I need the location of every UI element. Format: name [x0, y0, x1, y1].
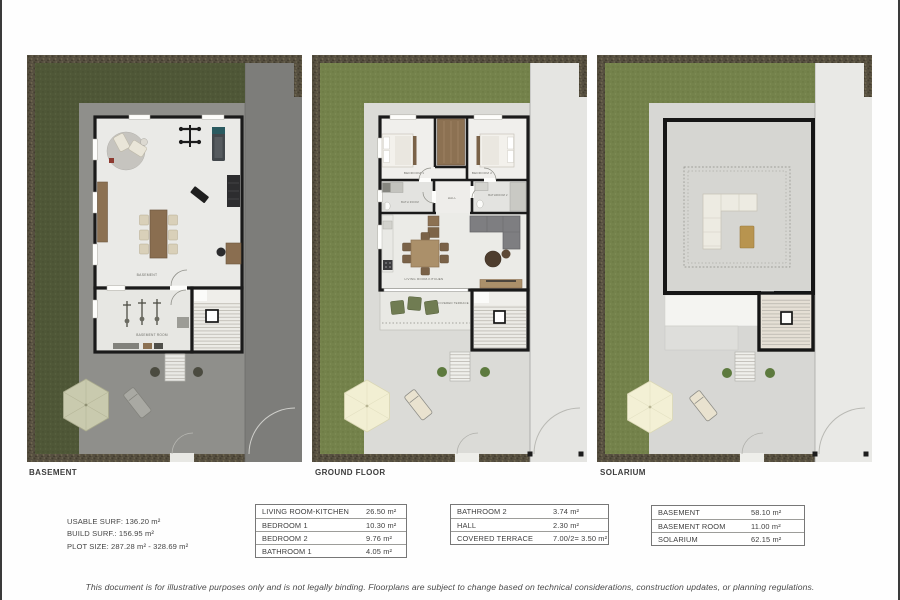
basement-site-plan: BASEMENT BASEMENT ROOM	[27, 55, 302, 462]
wardrobe	[438, 119, 465, 165]
room-label-bedroom1: BEDROOM 1	[404, 171, 424, 175]
exterior-stairs	[450, 352, 470, 381]
table-row: BATHROOM 1 4.05 m²	[256, 544, 406, 557]
room-label-basement-room: BASEMENT ROOM	[136, 333, 168, 337]
ground-floor-floorplan: BEDROOM 1 BEDROOM 2 BATH ROOM HALL BATHR…	[312, 55, 587, 462]
bed-2	[477, 134, 515, 167]
grass-strip-top	[605, 63, 815, 103]
interior-stairs	[472, 290, 528, 350]
grass-strip-top	[35, 63, 245, 103]
room-label-bathroom1: BATH ROOM	[401, 200, 419, 204]
table-row: SOLARIUM 62.15 m²	[652, 532, 804, 545]
side-table	[502, 250, 511, 259]
room-label: BEDROOM 2	[262, 534, 366, 543]
bush	[193, 367, 203, 377]
floorplan-sheet: BASEMENT BASEMENT ROOM	[0, 0, 900, 600]
solarium-floorplan	[597, 55, 872, 462]
bush	[150, 367, 160, 377]
area-value: 11.00 m²	[751, 522, 781, 531]
room-label: BASEMENT ROOM	[658, 522, 751, 531]
neighbor-band	[815, 63, 872, 462]
pouf-table	[740, 226, 754, 248]
area-value: 4.05 m²	[366, 547, 392, 556]
room-label: BATHROOM 1	[262, 547, 366, 556]
room-label: SOLARIUM	[658, 535, 751, 544]
table-row: BASEMENT ROOM 11.00 m²	[652, 519, 804, 532]
legal-disclaimer: This document is for illustrative purpos…	[2, 582, 898, 592]
table-row: LIVING ROOM-KITCHEN 26.50 m²	[256, 505, 406, 518]
bed-1	[382, 134, 417, 167]
dining-set	[140, 210, 178, 258]
exterior-stairs	[735, 352, 755, 381]
neighbor-band	[530, 63, 587, 462]
room-label: COVERED TERRACE	[457, 534, 553, 543]
area-value: 9.76 m²	[366, 534, 392, 543]
basement-building: BASEMENT BASEMENT ROOM	[93, 115, 242, 352]
room-label: HALL	[457, 521, 553, 530]
table-row: BASEMENT 58.10 m²	[652, 506, 804, 519]
table-row: HALL 2.30 m²	[451, 518, 608, 531]
ground-floor-building: BEDROOM 1 BEDROOM 2 BATH ROOM HALL BATHR…	[378, 115, 528, 350]
driveway-band	[245, 63, 302, 462]
plan-title-solarium: SOLARIUM	[600, 468, 646, 477]
area-table-ground-rooms: LIVING ROOM-KITCHEN 26.50 m² BEDROOM 1 1…	[255, 504, 407, 558]
area-value: 10.30 m²	[366, 521, 396, 530]
basement-floorplan: BASEMENT BASEMENT ROOM	[27, 55, 302, 462]
area-value: 7.00/2= 3.50 m²	[553, 534, 607, 543]
area-value: 3.74 m²	[553, 507, 579, 516]
bush	[437, 367, 447, 377]
room-label-bedroom2: BEDROOM 2	[472, 171, 492, 175]
exterior-stairs	[165, 352, 185, 381]
coffee-table	[485, 251, 501, 267]
table-row: COVERED TERRACE 7.00/2= 3.50 m²	[451, 531, 608, 544]
covered-terrace	[380, 290, 472, 330]
area-value: 2.30 m²	[553, 521, 579, 530]
area-table-ground-extras: BATHROOM 2 3.74 m² HALL 2.30 m² COVERED …	[450, 504, 609, 545]
table-row: BEDROOM 2 9.76 m²	[256, 531, 406, 544]
room-label: BASEMENT	[658, 508, 751, 517]
room-label-terrace: COVERED TERRACE	[437, 301, 469, 305]
room-label: BATHROOM 2	[457, 507, 553, 516]
room-label-basement: BASEMENT	[137, 273, 158, 277]
tv-console	[480, 280, 522, 289]
summary-plot-size: PLOT SIZE: 287.28 m² - 328.69 m²	[67, 541, 188, 553]
table-row: BEDROOM 1 10.30 m²	[256, 518, 406, 531]
ground-floor-site-plan: BEDROOM 1 BEDROOM 2 BATH ROOM HALL BATHR…	[312, 55, 587, 462]
grass-strip-top	[320, 63, 530, 103]
area-table-basement-solarium: BASEMENT 58.10 m² BASEMENT ROOM 11.00 m²…	[651, 505, 805, 546]
summary-usable-surface: USABLE SURF: 136.20 m²	[67, 516, 188, 528]
solarium-building	[665, 120, 813, 350]
bush	[765, 368, 775, 378]
room-label-living: LIVING ROOM-KITCHEN	[405, 277, 444, 281]
plan-title-ground-floor: GROUND FLOOR	[315, 468, 386, 477]
bush	[480, 367, 490, 377]
sideboard	[98, 182, 108, 242]
area-value: 62.15 m²	[751, 535, 781, 544]
table-row: BATHROOM 2 3.74 m²	[451, 505, 608, 518]
room-label: BEDROOM 1	[262, 521, 366, 530]
room-label: LIVING ROOM-KITCHEN	[262, 507, 366, 516]
media-rack	[227, 175, 240, 207]
room-label-hall: HALL	[448, 196, 457, 200]
solarium-site-plan	[597, 55, 872, 462]
interior-stairs	[759, 293, 813, 350]
surface-summary: USABLE SURF: 136.20 m² BUILD SURF.: 156.…	[67, 516, 188, 553]
room-label-bathroom2: BATHROOM 2	[488, 193, 508, 197]
area-value: 26.50 m²	[366, 507, 396, 516]
area-value: 58.10 m²	[751, 508, 781, 517]
plan-title-basement: BASEMENT	[29, 468, 77, 477]
bush	[722, 368, 732, 378]
summary-build-surface: BUILD SURF.: 156.95 m²	[67, 528, 188, 540]
treadmill	[212, 127, 225, 161]
